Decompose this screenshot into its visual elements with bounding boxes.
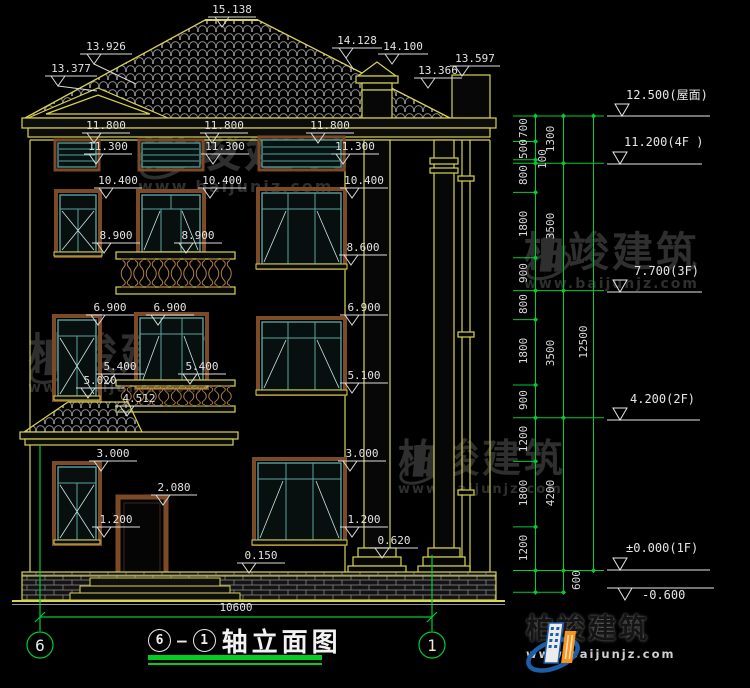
elev-label-vent: 11.300 — [201, 141, 249, 153]
elev-label-door-head: 2.080 — [151, 482, 197, 494]
elev-label-left-slope: 13.926 — [80, 41, 132, 53]
chain-dim: 1300 — [545, 117, 557, 161]
title-axis-start: 6 — [148, 629, 171, 652]
elev-label-f3-head: 6.900 — [340, 302, 388, 314]
elev-label-f4-head: 10.400 — [198, 175, 246, 187]
title-axis-end: 1 — [193, 629, 216, 652]
elev-label-f3-sill: 5.400 — [96, 361, 144, 373]
elevation-drawing — [0, 0, 750, 688]
title-underline-thin — [148, 663, 322, 665]
elev-label-f4-sill: 8.900 — [92, 230, 140, 242]
elev-label-f4-sill: 8.900 — [174, 230, 222, 242]
title-dash: — — [177, 631, 187, 650]
elev-label-vent: 11.300 — [84, 141, 132, 153]
elev-label-canopy-eave: 4.512 — [115, 393, 163, 405]
elev-label-f1-sill: 1.200 — [92, 514, 140, 526]
elev-label-f4-head: 10.400 — [340, 175, 388, 187]
cad-elevation-screenshot: 柏竣建筑 www.baijunjz.com 柏竣建筑 www.baijunjz.… — [0, 0, 750, 688]
entry-door — [118, 497, 166, 583]
elev-label-eave: 11.800 — [82, 120, 130, 132]
chain-dim: 3500 — [545, 204, 557, 248]
elev-label-eave: 11.800 — [200, 120, 248, 132]
elev-label-right-roof: 13.366 — [414, 65, 462, 77]
floor-level-symbols — [607, 104, 714, 600]
level-below-grade: -0.600 — [642, 589, 685, 602]
level-3f: 7.700(3F) — [634, 265, 699, 278]
title-underline — [148, 655, 322, 660]
elev-label-left-gable: 13.377 — [45, 63, 97, 75]
elev-label-peak: 15.138 — [208, 4, 256, 16]
company-logo: 柏竣建筑 www.baijunjz.com — [526, 615, 675, 661]
title-text: 轴立面图 — [222, 622, 342, 659]
elev-label-f3-sill-big: 5.100 — [340, 370, 388, 382]
porch-column — [348, 140, 406, 574]
elev-label-f1-sill: 1.200 — [340, 514, 388, 526]
elev-label-eave: 11.800 — [306, 120, 354, 132]
drawing-title: 6 — 1 轴立面图 — [148, 622, 342, 659]
elev-label-canopy-top: 5.020 — [76, 375, 124, 387]
level-4f: 11.200(4F ) — [624, 136, 703, 149]
plinth — [12, 572, 505, 605]
level-2f: 4.200(2F) — [630, 393, 695, 406]
chain-dim-total: 12500 — [578, 320, 590, 364]
chain-dim: 800 — [518, 282, 530, 326]
grid-bubble-1: 1 — [419, 637, 445, 654]
grid-bubble-6: 6 — [27, 637, 53, 654]
elev-label-vent: 11.300 — [331, 141, 379, 153]
chain-dim: 3500 — [545, 331, 557, 375]
level-roof: 12.500(屋面) — [626, 89, 708, 102]
elev-label-f4-sill-big: 8.600 — [339, 242, 387, 254]
pilaster — [418, 140, 474, 574]
chain-dim: 1800 — [518, 471, 530, 515]
balcony-balustrade-upper — [116, 252, 235, 294]
chain-dim: 1800 — [518, 202, 530, 246]
chain-dim: 4200 — [545, 471, 557, 515]
elev-label-parapet: 13.597 — [450, 53, 500, 65]
chain-dim: 900 — [518, 378, 530, 422]
elev-label-column-base: 0.620 — [370, 535, 418, 547]
right-parapet — [452, 75, 490, 118]
chain-dim: 600 — [571, 558, 583, 602]
elev-label-f4-head: 10.400 — [94, 175, 142, 187]
elev-label-right-slope: 14.128 — [332, 35, 382, 47]
elev-label-f1-head: 3.000 — [338, 448, 386, 460]
elev-label-f3-sill: 5.400 — [178, 361, 226, 373]
chain-dim: 800 — [518, 153, 530, 197]
elev-label-f3-head: 6.900 — [86, 302, 134, 314]
elev-label-f1-head: 3.000 — [89, 448, 137, 460]
chain-dim: 1200 — [518, 417, 530, 461]
overall-width-dim: 10600 — [206, 602, 266, 614]
company-logo-icon — [526, 615, 584, 677]
chain-dim: 1200 — [518, 526, 530, 570]
chimney — [356, 62, 398, 118]
elev-label-porch-floor: 0.150 — [237, 550, 285, 562]
chain-dim: 1800 — [518, 329, 530, 373]
level-1f: ±0.000(1F) — [626, 542, 698, 555]
elev-label-f3-head: 6.900 — [146, 302, 194, 314]
elev-label-chimney: 14.100 — [378, 41, 428, 53]
